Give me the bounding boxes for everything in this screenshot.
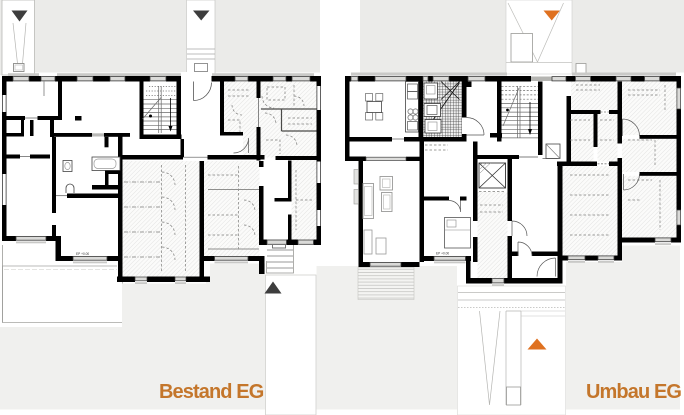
svg-text:Bestand EG: Bestand EG xyxy=(159,381,264,403)
svg-text:EP +0.00: EP +0.00 xyxy=(436,252,449,256)
svg-text:EP +0.00: EP +0.00 xyxy=(76,252,89,256)
svg-text:Umbau EG: Umbau EG xyxy=(586,381,681,403)
